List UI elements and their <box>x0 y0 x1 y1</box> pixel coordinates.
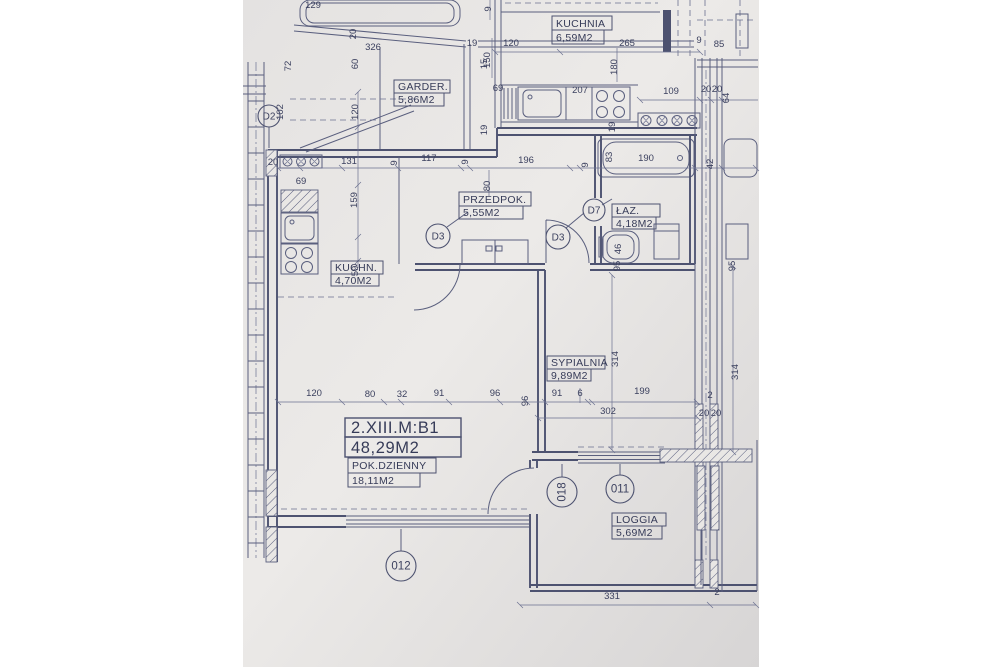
dimension-label: 15 <box>479 59 490 70</box>
dimension-label: 117 <box>421 153 436 164</box>
dimension-label: 199 <box>634 386 650 397</box>
dimension-label: 72 <box>283 61 294 72</box>
dimension-label: 19 <box>607 122 618 133</box>
dimension-label: 95 <box>727 261 738 272</box>
dimension-label: 19 <box>479 125 490 136</box>
dimension-label: 120 <box>503 38 519 49</box>
dimension-label: 265 <box>619 38 635 49</box>
dimension-label: 46 <box>613 244 624 255</box>
dimension-label: 102 <box>275 104 286 120</box>
room-name: ŁAZ. <box>616 205 639 217</box>
dimension-label: 207 <box>572 85 588 96</box>
dimension-label: 9 <box>696 35 701 46</box>
room-area: 18,11M2 <box>352 475 394 487</box>
dimension-label: 2 <box>714 587 719 598</box>
dimension-label: 32 <box>397 389 408 400</box>
dimension-label: 96 <box>490 388 501 399</box>
dimension-label: 326 <box>365 42 381 53</box>
room-name: POK.DZIENNY <box>352 460 426 472</box>
dimension-label: 80 <box>482 181 493 192</box>
room-name: KUCHN. <box>335 262 377 274</box>
svg-text:D3: D3 <box>552 233 565 244</box>
room-name: KUCHNIA <box>556 18 605 30</box>
dimension-label: 85 <box>714 39 725 50</box>
dimension-label: 95 <box>612 261 623 272</box>
dimension-label: 96 <box>520 396 531 407</box>
dimension-label: 20 <box>699 408 710 419</box>
dimension-label: 120 <box>350 104 361 120</box>
dimension-label: 64 <box>721 93 732 104</box>
dimension-label: 91 <box>434 388 445 399</box>
room-name: GARDER. <box>398 81 448 93</box>
dimension-label: 9 <box>483 6 494 11</box>
blueprint-drawing: 9129120265191502032660151801027220710920… <box>0 0 1000 667</box>
dimension-label: 314 <box>730 364 741 380</box>
dimension-label: 129 <box>305 0 321 11</box>
room-name: PRZEDPOK. <box>463 194 526 206</box>
dimension-label: 42 <box>705 159 716 170</box>
dimension-label: 9 <box>580 162 591 167</box>
room-area: 6,59M2 <box>556 32 593 44</box>
room-area: 5,55M2 <box>463 207 500 219</box>
svg-text:D2: D2 <box>263 112 276 123</box>
dimension-label: 120 <box>306 388 322 399</box>
svg-text:D7: D7 <box>588 206 601 217</box>
dimension-label: 180 <box>609 59 620 75</box>
dimension-label: 131 <box>341 156 357 167</box>
dimension-label: 20 <box>701 84 712 95</box>
dimension-label: 80 <box>365 389 376 400</box>
dimension-label: 109 <box>663 86 679 97</box>
dimension-label: 20 <box>711 408 722 419</box>
dimension-label: 196 <box>518 155 534 166</box>
dimension-label: 2 <box>707 390 712 401</box>
dimension-label: 69 <box>296 176 307 187</box>
dimension-label: 190 <box>638 153 654 164</box>
dimension-label: 314 <box>610 351 621 367</box>
room-name: LOGGIA <box>616 514 658 526</box>
dimension-label: 9 <box>460 159 471 164</box>
svg-text:D3: D3 <box>432 232 445 243</box>
dimension-label: 19 <box>467 38 478 49</box>
dimension-label: 83 <box>604 152 615 163</box>
unit-area: 48,29M2 <box>351 439 419 457</box>
dimension-label: 9 <box>389 160 400 165</box>
svg-text:011: 011 <box>611 484 629 496</box>
room-area: 4,70M2 <box>335 275 372 287</box>
dimension-label: 20 <box>348 29 359 40</box>
room-area: 4,18M2 <box>616 218 653 230</box>
dimension-label: 91 <box>552 388 563 399</box>
floor-plan-page: 9129120265191502032660151801027220710920… <box>0 0 1000 667</box>
room-area: 5,86M2 <box>398 94 435 106</box>
dimension-label: 20 <box>268 157 279 168</box>
room-area: 9,89M2 <box>551 370 588 382</box>
room-name: SYPIALNIA <box>551 357 608 369</box>
dimension-label: 6 <box>577 388 582 399</box>
room-area: 5,69M2 <box>616 527 653 539</box>
dimension-label: 331 <box>604 591 620 602</box>
dimension-label: 159 <box>349 192 360 208</box>
dimension-label: 69 <box>493 83 504 94</box>
svg-text:018: 018 <box>557 482 569 501</box>
svg-text:012: 012 <box>391 561 410 573</box>
dimension-label: 60 <box>350 59 361 70</box>
dimension-label: 302 <box>600 406 616 417</box>
unit-id: 2.XIII.M:B1 <box>351 419 439 437</box>
